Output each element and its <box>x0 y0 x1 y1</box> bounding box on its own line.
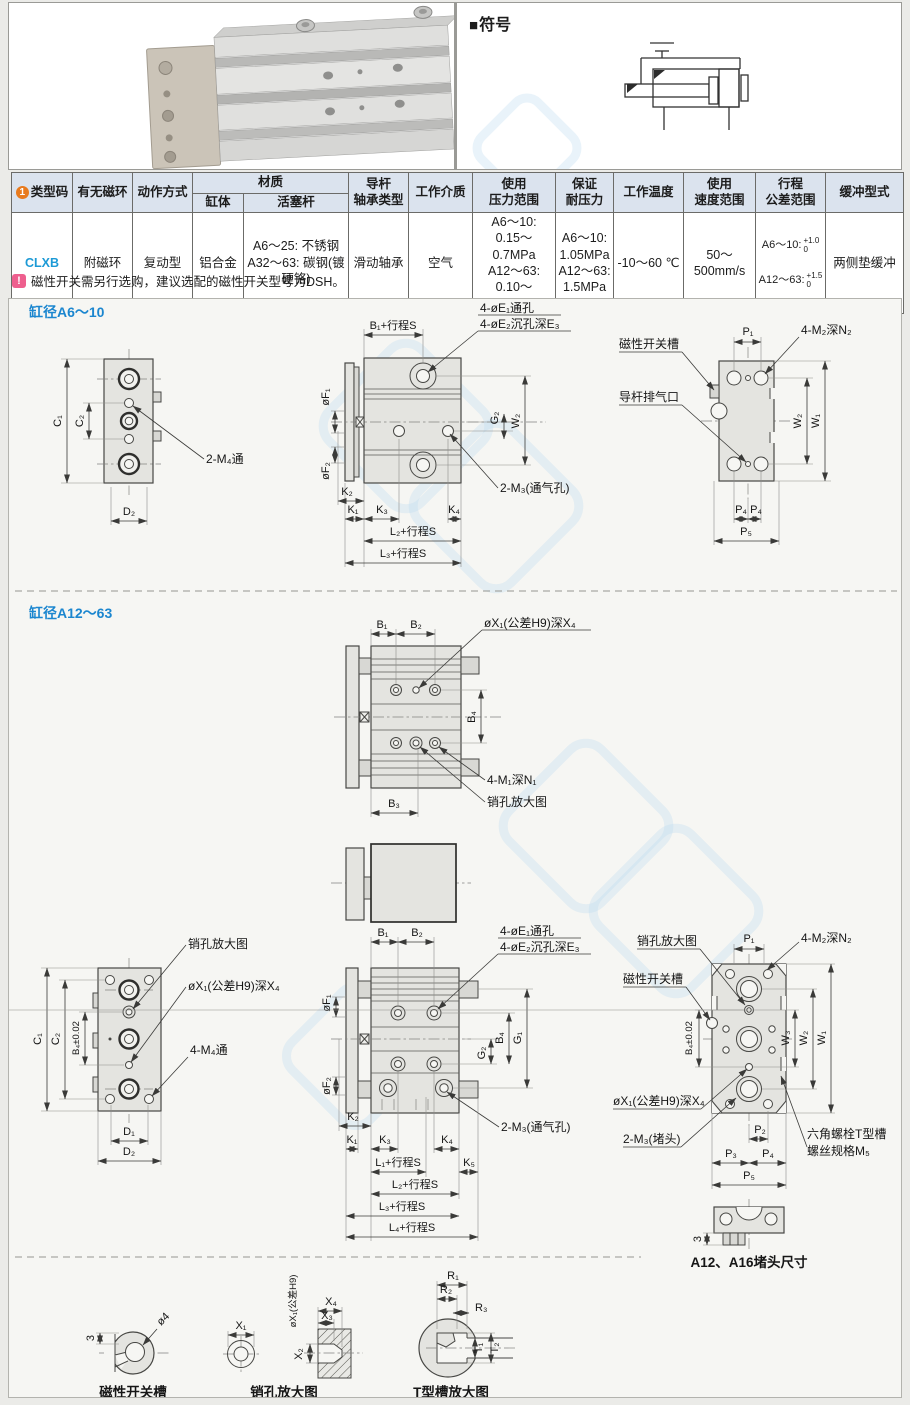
product-photo-render <box>9 3 455 169</box>
top-strip: ■符号 <box>8 2 902 170</box>
header-temperature: 工作温度 <box>614 173 684 213</box>
dim-p5-a12: P₅ <box>743 1170 755 1182</box>
section-a12: 缸径A12～63 B₁ B₂ øX₁(公差H9)深X₄ B₄ 4-M₁深N₁ <box>9 605 886 1270</box>
dim-p2: P₂ <box>754 1124 766 1136</box>
dim-l1-stroke: L₁+行程S <box>375 1156 421 1169</box>
callout-m3: 2-M₃(通气孔) <box>500 480 570 495</box>
dim-b4t-right: B₄±0.02 <box>684 1021 695 1055</box>
caption-pin-hole: 销孔放大图 <box>250 1384 318 1397</box>
dim-x3: X₃ <box>321 1310 333 1322</box>
dim-w2-a12: W₂ <box>798 1031 810 1046</box>
dim-p5: P₅ <box>740 526 752 538</box>
dim-f2: øF₂ <box>320 462 332 480</box>
dim-w1-a12: W₁ <box>816 1031 828 1045</box>
dim-l2-stroke: L₂+行程S <box>390 525 436 538</box>
callout-e2: 4-øE₂沉孔深E₃ <box>480 317 560 331</box>
dim-w2-right: W₂ <box>792 414 804 429</box>
technical-drawings: 缸径A6～10 C₁ C₂ 2-M₄通 D₂ <box>9 299 901 1397</box>
caption-switch-slot: 磁性开关槽 <box>99 1384 167 1397</box>
dim-p4a: P₄ <box>735 504 747 516</box>
a12-top-view: B₁ B₂ øX₁(公差H9)深X₄ B₄ 4-M₁深N₁ 销孔放大图 B₃ <box>334 616 591 817</box>
dim-k4: K₄ <box>448 504 460 516</box>
dim-g2-mid: G₂ <box>476 1047 488 1060</box>
dim-d2-a12: D₂ <box>123 1146 135 1158</box>
drawings-panel: 缸径A6～10 C₁ C₂ 2-M₄通 D₂ <box>8 298 902 1398</box>
index-1-badge-icon: 1 <box>16 186 29 199</box>
dim-t1: T₁ <box>473 1342 485 1353</box>
section-a6: 缸径A6～10 C₁ C₂ 2-M₄通 D₂ <box>29 301 852 567</box>
header-pressure: 使用 压力范围 <box>473 173 556 213</box>
square-bullet-icon: ■ <box>469 17 478 34</box>
callout-e1: 4-øE₁通孔 <box>480 301 534 315</box>
dim-f2-mid: øF₂ <box>321 1077 333 1095</box>
dim-k4-mid: K₄ <box>441 1134 453 1146</box>
dim-t2: T₂ <box>489 1343 501 1354</box>
dim-w1: W₁ <box>810 414 822 428</box>
dim-d1: D₁ <box>123 1126 135 1138</box>
dim-k2: K₂ <box>341 486 353 498</box>
dim-w2: W₂ <box>510 414 522 429</box>
a12-plug-detail: 3 A12、A16堵头尺寸 <box>690 1199 808 1270</box>
dim-c1-a12: C₁ <box>32 1033 44 1045</box>
callout-m2n2-a12: 4-M₂深N₂ <box>801 931 852 945</box>
header-cylinder-body: 缸体 <box>193 194 244 213</box>
dim-k1: K₁ <box>347 504 358 516</box>
symbol-box: ■符号 <box>455 2 902 170</box>
dim-r2: R₂ <box>440 1284 452 1296</box>
dim-x4: X₄ <box>325 1296 337 1308</box>
dim-l2-stroke-a12: L₂+行程S <box>392 1178 438 1191</box>
dim-sw-3: 3 <box>85 1335 97 1341</box>
dim-w3: W₃ <box>780 1031 792 1046</box>
callout-pin-top: 销孔放大图 <box>487 794 547 809</box>
callout-m3-plug: 2-M₃(堵头) <box>623 1132 681 1146</box>
dim-k3-mid: K₃ <box>379 1134 391 1146</box>
callout-slot-right: 磁性开关槽 <box>623 971 683 986</box>
dim-x1: X₁ <box>235 1320 246 1332</box>
header-medium: 工作介质 <box>409 173 473 213</box>
dim-x2: X₂ <box>293 1348 305 1360</box>
a6-middle-view: B₁+行程S 4-øE₁通孔 4-øE₂沉孔深E₃ øF₁ øF₂ G₂ W₂ … <box>320 301 571 567</box>
callout-m3-mid: 2-M₃(通气孔) <box>501 1119 571 1134</box>
product-photo <box>8 2 455 170</box>
header-material: 材质 <box>193 173 349 194</box>
dim-f1-mid: øF₁ <box>321 994 333 1011</box>
detail-switch-slot: 3 ø4 磁性开关槽 <box>85 1311 172 1397</box>
dim-p4b: P₄ <box>750 504 762 516</box>
callout-rod-vent: 导杆排气口 <box>619 389 679 404</box>
a12-left-view: C₁ C₂ B₄±0.02 销孔放大图 øX₁(公差H9)深X₄ 4-M₄通 D… <box>32 936 280 1165</box>
note-row: ! 磁性开关需另行选购，建议选配的磁性开关型号为DSH。 <box>12 271 345 290</box>
a12-middle-view: B₁ B₂ 4-øE₁通孔 4-øE₂沉孔深E₃ øF₁ øF₂ G₂ B₄ G… <box>321 924 591 1241</box>
dim-x1-h9: øX₁(公差H9) <box>287 1275 299 1328</box>
callout-m2n2: 4-M₂深N₂ <box>801 323 852 337</box>
callout-2-m4: 2-M₄通 <box>206 452 244 466</box>
dim-r1: R₁ <box>447 1270 459 1282</box>
dim-plug-3: 3 <box>692 1236 704 1242</box>
dim-c2-a12: C₂ <box>50 1033 62 1045</box>
header-piston-rod: 活塞杆 <box>244 194 349 213</box>
pneumatic-symbol <box>457 3 902 169</box>
callout-e1-mid: 4-øE₁通孔 <box>500 924 554 938</box>
spec-table: 1类型码 有无磁环 动作方式 材质 导杆 轴承类型 工作介质 使用 压力范围 保… <box>11 172 904 314</box>
dim-k2-mid: K₂ <box>347 1111 359 1123</box>
dim-b3: B₃ <box>388 798 400 810</box>
callout-4m4: 4-M₄通 <box>190 1043 228 1057</box>
section-a12-title: 缸径A12～63 <box>29 605 112 621</box>
dim-g1: G₁ <box>512 1032 524 1045</box>
symbol-title: ■符号 <box>469 11 511 35</box>
dim-c1: C₁ <box>52 415 64 427</box>
callout-pin-left: 销孔放大图 <box>188 936 248 951</box>
dim-b1-top: B₁ <box>376 619 387 631</box>
a6-right-view: P₁ 4-M₂深N₂ 磁性开关槽 导杆排气口 W₂ W₁ P₄ P₄ P₅ <box>619 323 852 545</box>
dim-b1-stroke: B₁+行程S <box>370 319 417 332</box>
dim-k1-mid: K₁ <box>346 1134 357 1146</box>
dim-b2-mid: B₂ <box>411 927 423 939</box>
note-text: 磁性开关需另行选购，建议选配的磁性开关型号为DSH。 <box>31 271 345 290</box>
detail-views: 3 ø4 磁性开关槽 X₁ X₂ øX₁(公差H9) X₄ X₃ 销孔放大图 <box>85 1270 517 1397</box>
a6-left-view: C₁ C₂ 2-M₄通 D₂ <box>52 349 244 525</box>
header-type-code: 1类型码 <box>12 173 73 213</box>
dim-l3-stroke-a12: L₃+行程S <box>379 1200 425 1213</box>
callout-m1n1: 4-M₁深N₁ <box>487 773 536 787</box>
callout-tslot-line2: 螺丝规格M₅ <box>807 1143 870 1158</box>
header-magnet: 有无磁环 <box>73 173 133 213</box>
dim-l4-stroke: L₄+行程S <box>389 1221 435 1234</box>
dim-b4-top: B₄ <box>466 711 478 723</box>
dim-b2-top: B₂ <box>410 619 422 631</box>
dim-k5: K₅ <box>463 1157 475 1169</box>
plug-caption: A12、A16堵头尺寸 <box>690 1254 808 1270</box>
section-a6-title: 缸径A6～10 <box>29 304 105 320</box>
header-speed: 使用 速度范围 <box>684 173 756 213</box>
callout-x1-left: øX₁(公差H9)深X₄ <box>188 979 280 993</box>
a12-side-block <box>331 844 471 922</box>
dim-sw-dia4: ø4 <box>155 1311 173 1329</box>
header-stroke-tolerance: 行程 公差范围 <box>756 173 826 213</box>
dim-r3: R₃ <box>475 1302 487 1314</box>
detail-t-slot: R₁ R₂ R₃ T₁ T₂ T型槽放大图 <box>413 1270 517 1397</box>
callout-tslot-line1: 六角螺栓T型槽 <box>807 1126 886 1141</box>
callout-switch-slot: 磁性开关槽 <box>619 336 679 351</box>
dim-l3-stroke: L₃+行程S <box>380 547 426 560</box>
dim-d2: D₂ <box>123 506 135 518</box>
header-action: 动作方式 <box>133 173 193 213</box>
dim-p1-a12: P₁ <box>743 933 754 945</box>
dim-p3: P₃ <box>725 1148 737 1160</box>
warning-icon: ! <box>12 274 26 288</box>
header-bearing: 导杆 轴承类型 <box>349 173 409 213</box>
header-proof-pressure: 保证 耐压力 <box>556 173 614 213</box>
dim-f1: øF₁ <box>320 388 332 405</box>
callout-x1-top: øX₁(公差H9)深X₄ <box>484 616 576 630</box>
dim-k3: K₃ <box>376 504 388 516</box>
callout-pin-right: 销孔放大图 <box>637 933 697 948</box>
callout-x1-right: øX₁(公差H9)深X₄ <box>613 1094 705 1108</box>
dim-b4-mid: B₄ <box>494 1032 506 1044</box>
caption-t-slot: T型槽放大图 <box>413 1384 489 1397</box>
dim-c2: C₂ <box>74 415 86 427</box>
header-cushion: 缓冲型式 <box>826 173 904 213</box>
detail-pin-hole: X₁ X₂ øX₁(公差H9) X₄ X₃ 销孔放大图 <box>223 1275 363 1397</box>
callout-e2-mid: 4-øE₂沉孔深E₃ <box>500 940 580 954</box>
dim-p1: P₁ <box>742 326 753 338</box>
dim-g2: G₂ <box>489 412 501 425</box>
dim-b1-mid: B₁ <box>377 927 388 939</box>
dim-b4-tol: B₄±0.02 <box>71 1021 82 1055</box>
dim-p4-a12: P₄ <box>762 1148 774 1160</box>
